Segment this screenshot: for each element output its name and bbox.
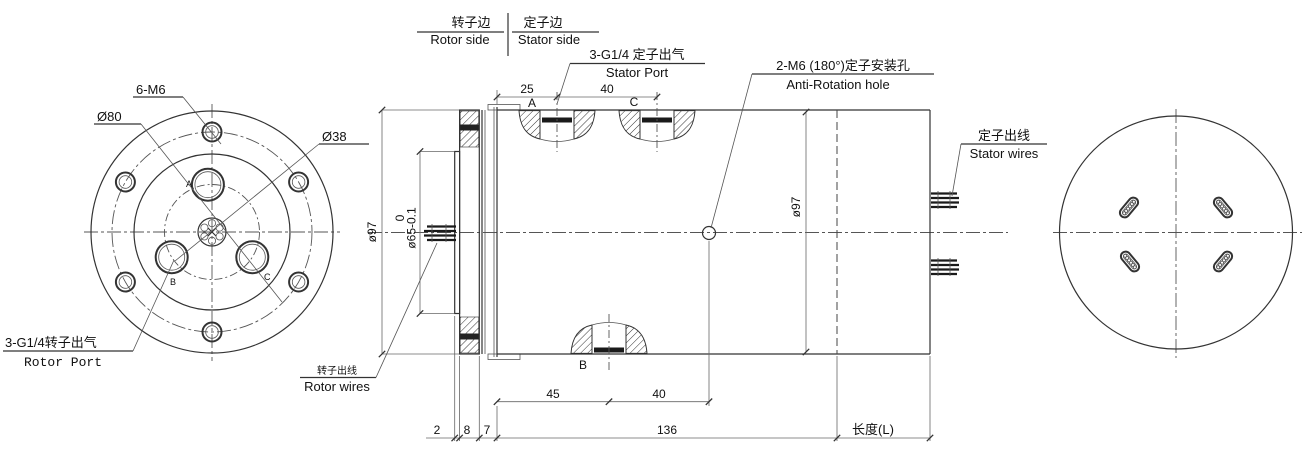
section-port-b-letter: B bbox=[579, 358, 587, 372]
section-port-a: A bbox=[519, 92, 595, 152]
anti-rotation-leader bbox=[711, 74, 752, 228]
bottom-dimensions: 2 8 7 136 长度(L) bbox=[426, 316, 933, 441]
rear-view bbox=[1053, 109, 1302, 358]
spigot-dia-label: ø65-0.1 bbox=[405, 207, 419, 249]
stator-wires-en-label: Stator wires bbox=[970, 146, 1039, 161]
stator-port-en-label: Stator Port bbox=[606, 65, 669, 80]
dim-40-bottom: 40 bbox=[652, 387, 666, 401]
stator-wires-leader bbox=[952, 144, 961, 196]
side-header: 转子边 Rotor side 定子边 Stator side bbox=[417, 13, 599, 56]
flange-seal-top bbox=[460, 125, 479, 131]
flange-seal-bottom bbox=[460, 334, 479, 340]
port-circle-dia-label: Ø38 bbox=[322, 129, 347, 144]
stator-port-leader bbox=[557, 64, 570, 105]
rotor-wire-bundle bbox=[424, 224, 456, 242]
dim-45: 45 bbox=[546, 387, 560, 401]
rotor-flange bbox=[455, 110, 480, 354]
rotor-port-cn-label: 3-G1/4转子出气 bbox=[5, 335, 97, 350]
stator-port-cn-label: 3-G1/4 定子出气 bbox=[589, 47, 684, 62]
bolt-leader bbox=[183, 97, 221, 144]
section-port-c: C bbox=[619, 92, 695, 152]
stator-wires-cn-label: 定子出线 bbox=[978, 128, 1030, 143]
stator-side-en: Stator side bbox=[518, 32, 580, 47]
dim-2: 2 bbox=[434, 423, 441, 437]
port-c-circle bbox=[236, 241, 268, 273]
front-gap bbox=[482, 105, 520, 360]
port-b-letter: B bbox=[170, 277, 176, 287]
rotor-side-en: Rotor side bbox=[430, 32, 489, 47]
anti-rotation-hole bbox=[703, 227, 716, 240]
dim-7: 7 bbox=[484, 423, 491, 437]
front-view: A B C 6-M6 Ø80 Ø38 3-G1/ bbox=[3, 82, 369, 370]
dim-136: 136 bbox=[657, 423, 677, 437]
rotor-side-cn: 转子边 bbox=[451, 15, 490, 30]
pneumatic-ports: A B C bbox=[156, 169, 271, 287]
engineering-drawing-slip-ring: 转子边 Rotor side 定子边 Stator side bbox=[0, 0, 1314, 458]
stator-body bbox=[497, 110, 930, 354]
port-b-circle bbox=[156, 241, 188, 273]
section-port-a-letter: A bbox=[528, 96, 536, 110]
stator-wire-bundles bbox=[931, 191, 959, 276]
wire-slot-lower-left bbox=[1119, 250, 1141, 274]
anti-rotation-en-label: Anti-Rotation hole bbox=[786, 77, 889, 92]
rotor-wires-cn-label: 转子出线 bbox=[317, 364, 357, 377]
dim-40-top: 40 bbox=[600, 82, 614, 96]
body-dia-label: ø97 bbox=[789, 196, 803, 217]
dim-25: 25 bbox=[520, 82, 534, 96]
dim-8: 8 bbox=[464, 423, 471, 437]
rotor-wires-leader bbox=[376, 243, 437, 378]
body-dia-dimension: ø97 bbox=[789, 109, 809, 355]
wire-slot-lower-right bbox=[1212, 250, 1234, 274]
mid-dimensions: 45 40 bbox=[494, 241, 712, 406]
rotor-wires-en-label: Rotor wires bbox=[304, 379, 370, 394]
rotor-port-en-label: Rotor Port bbox=[24, 355, 102, 370]
front-view-labels: 6-M6 Ø80 Ø38 3-G1/4转子出气 Rotor Port bbox=[3, 82, 369, 370]
dim-length-L: 长度(L) bbox=[852, 422, 894, 437]
bolt-circle-leader bbox=[141, 124, 282, 302]
port-circle-leader bbox=[175, 144, 319, 261]
bolt-pattern-label: 6-M6 bbox=[136, 82, 166, 97]
bolt-circle-dia-label: Ø80 bbox=[97, 109, 122, 124]
section-view: ø97 0 ø65-0.1 bbox=[300, 47, 1047, 441]
flange-dia-label: ø97 bbox=[365, 221, 379, 242]
section-port-b: B bbox=[571, 314, 647, 372]
wire-slot-upper-left bbox=[1118, 196, 1140, 220]
stator-side-cn: 定子边 bbox=[523, 15, 562, 30]
wire-slot-upper-right bbox=[1212, 196, 1234, 220]
drawing-canvas: 转子边 Rotor side 定子边 Stator side bbox=[0, 0, 1314, 458]
anti-rotation-cn-label: 2-M6 (180°)定子安装孔 bbox=[776, 58, 910, 73]
front-collar-top bbox=[488, 105, 520, 111]
front-collar-bottom bbox=[488, 354, 520, 360]
